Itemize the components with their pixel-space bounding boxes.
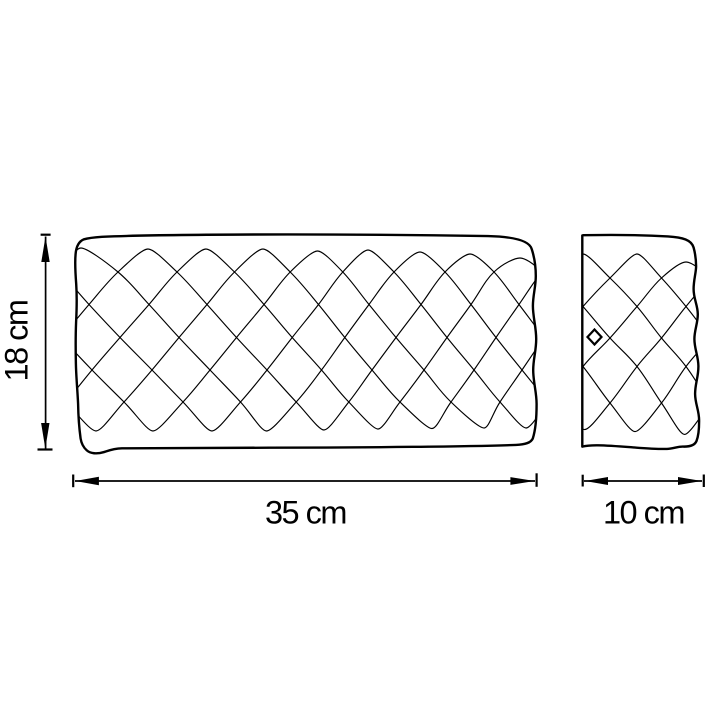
svg-text:18 cm: 18 cm: [0, 300, 35, 381]
svg-text:35 cm: 35 cm: [265, 495, 346, 531]
svg-text:10 cm: 10 cm: [603, 495, 684, 531]
